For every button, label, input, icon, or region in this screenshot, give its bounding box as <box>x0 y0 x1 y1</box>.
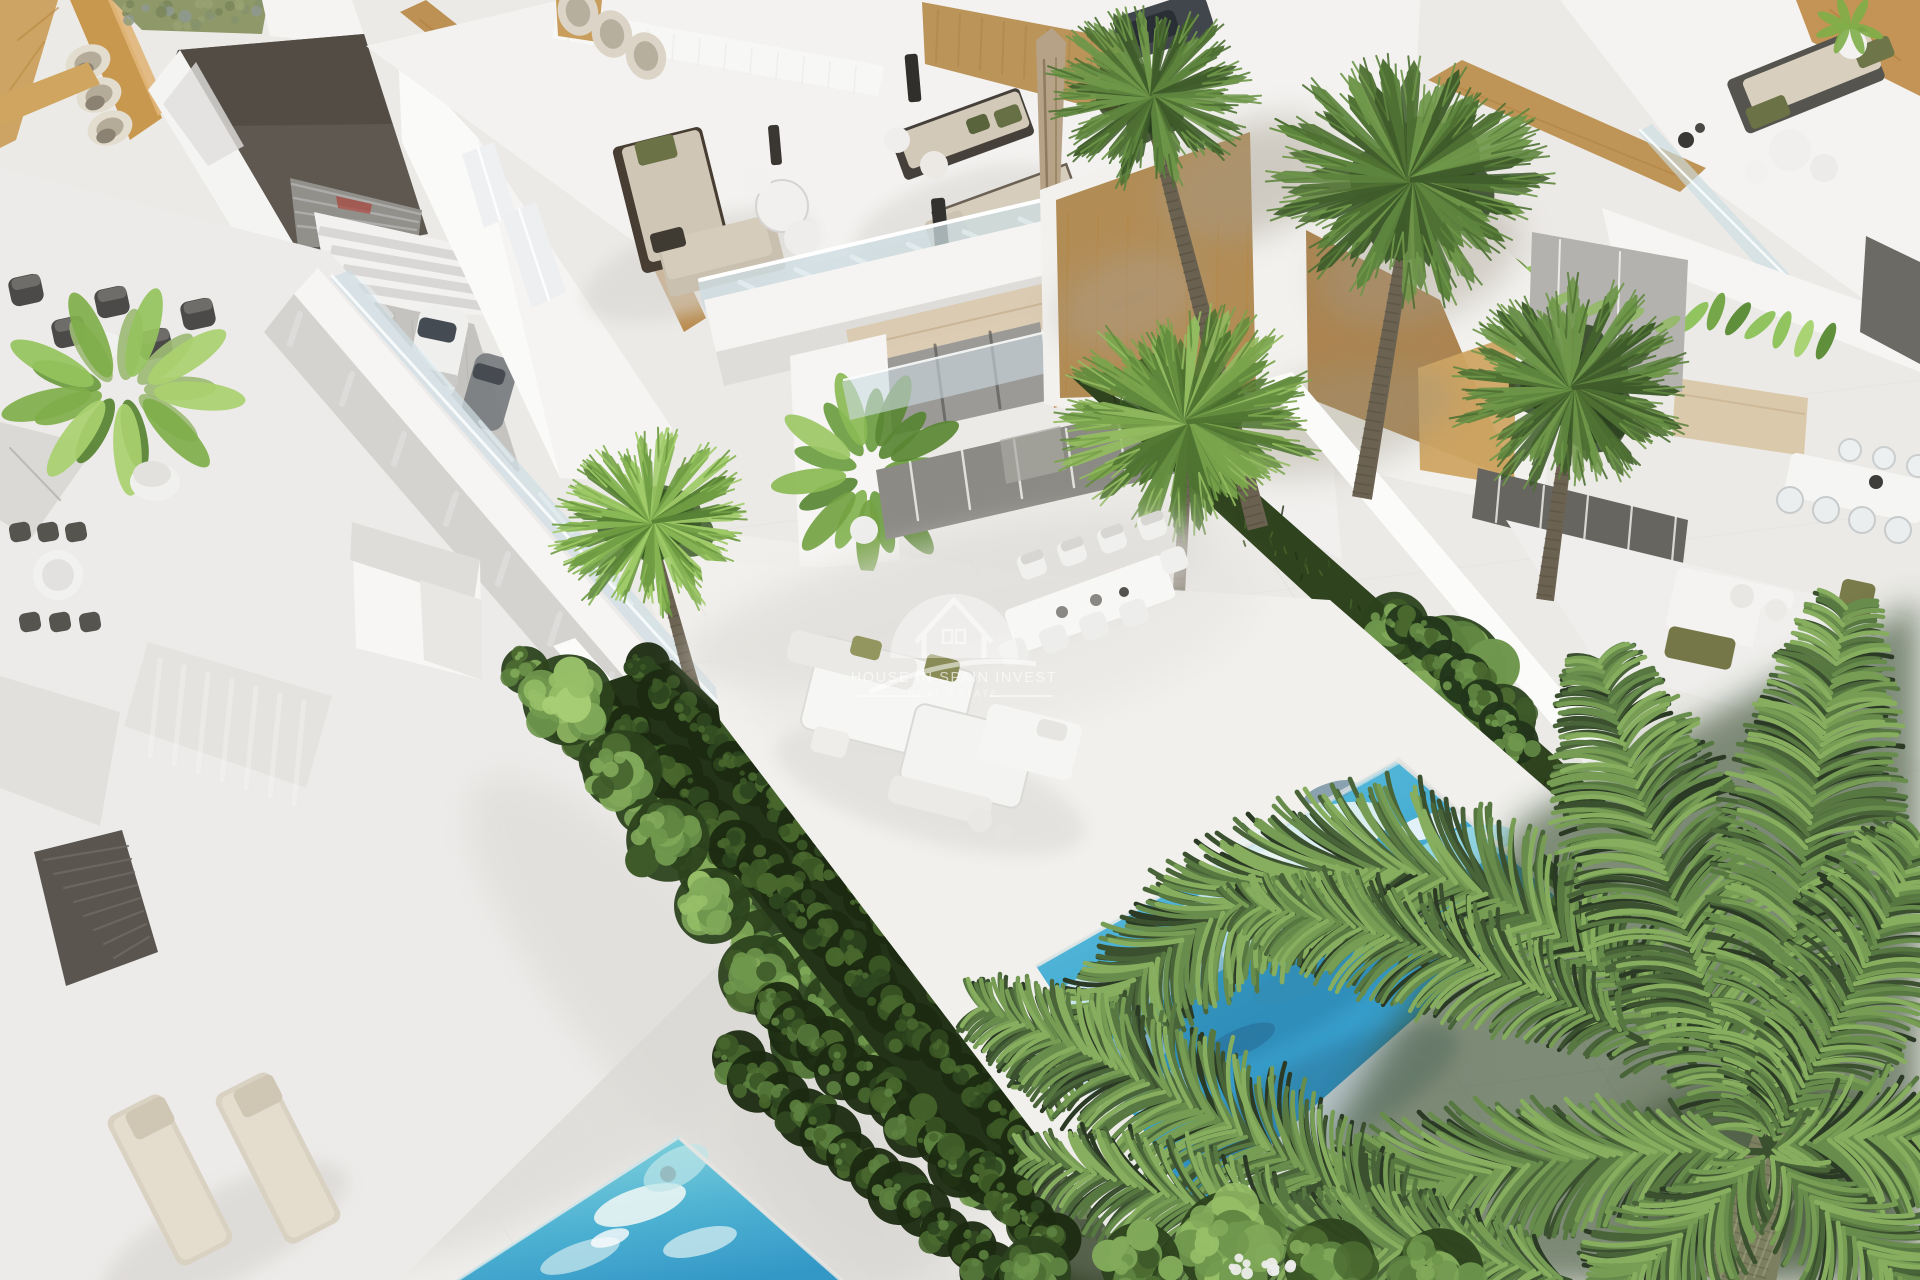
svg-text:REAL ESTATE: REAL ESTATE <box>908 689 999 700</box>
svg-text:HOUSE IN SPAIN INVEST: HOUSE IN SPAIN INVEST <box>851 670 1058 686</box>
